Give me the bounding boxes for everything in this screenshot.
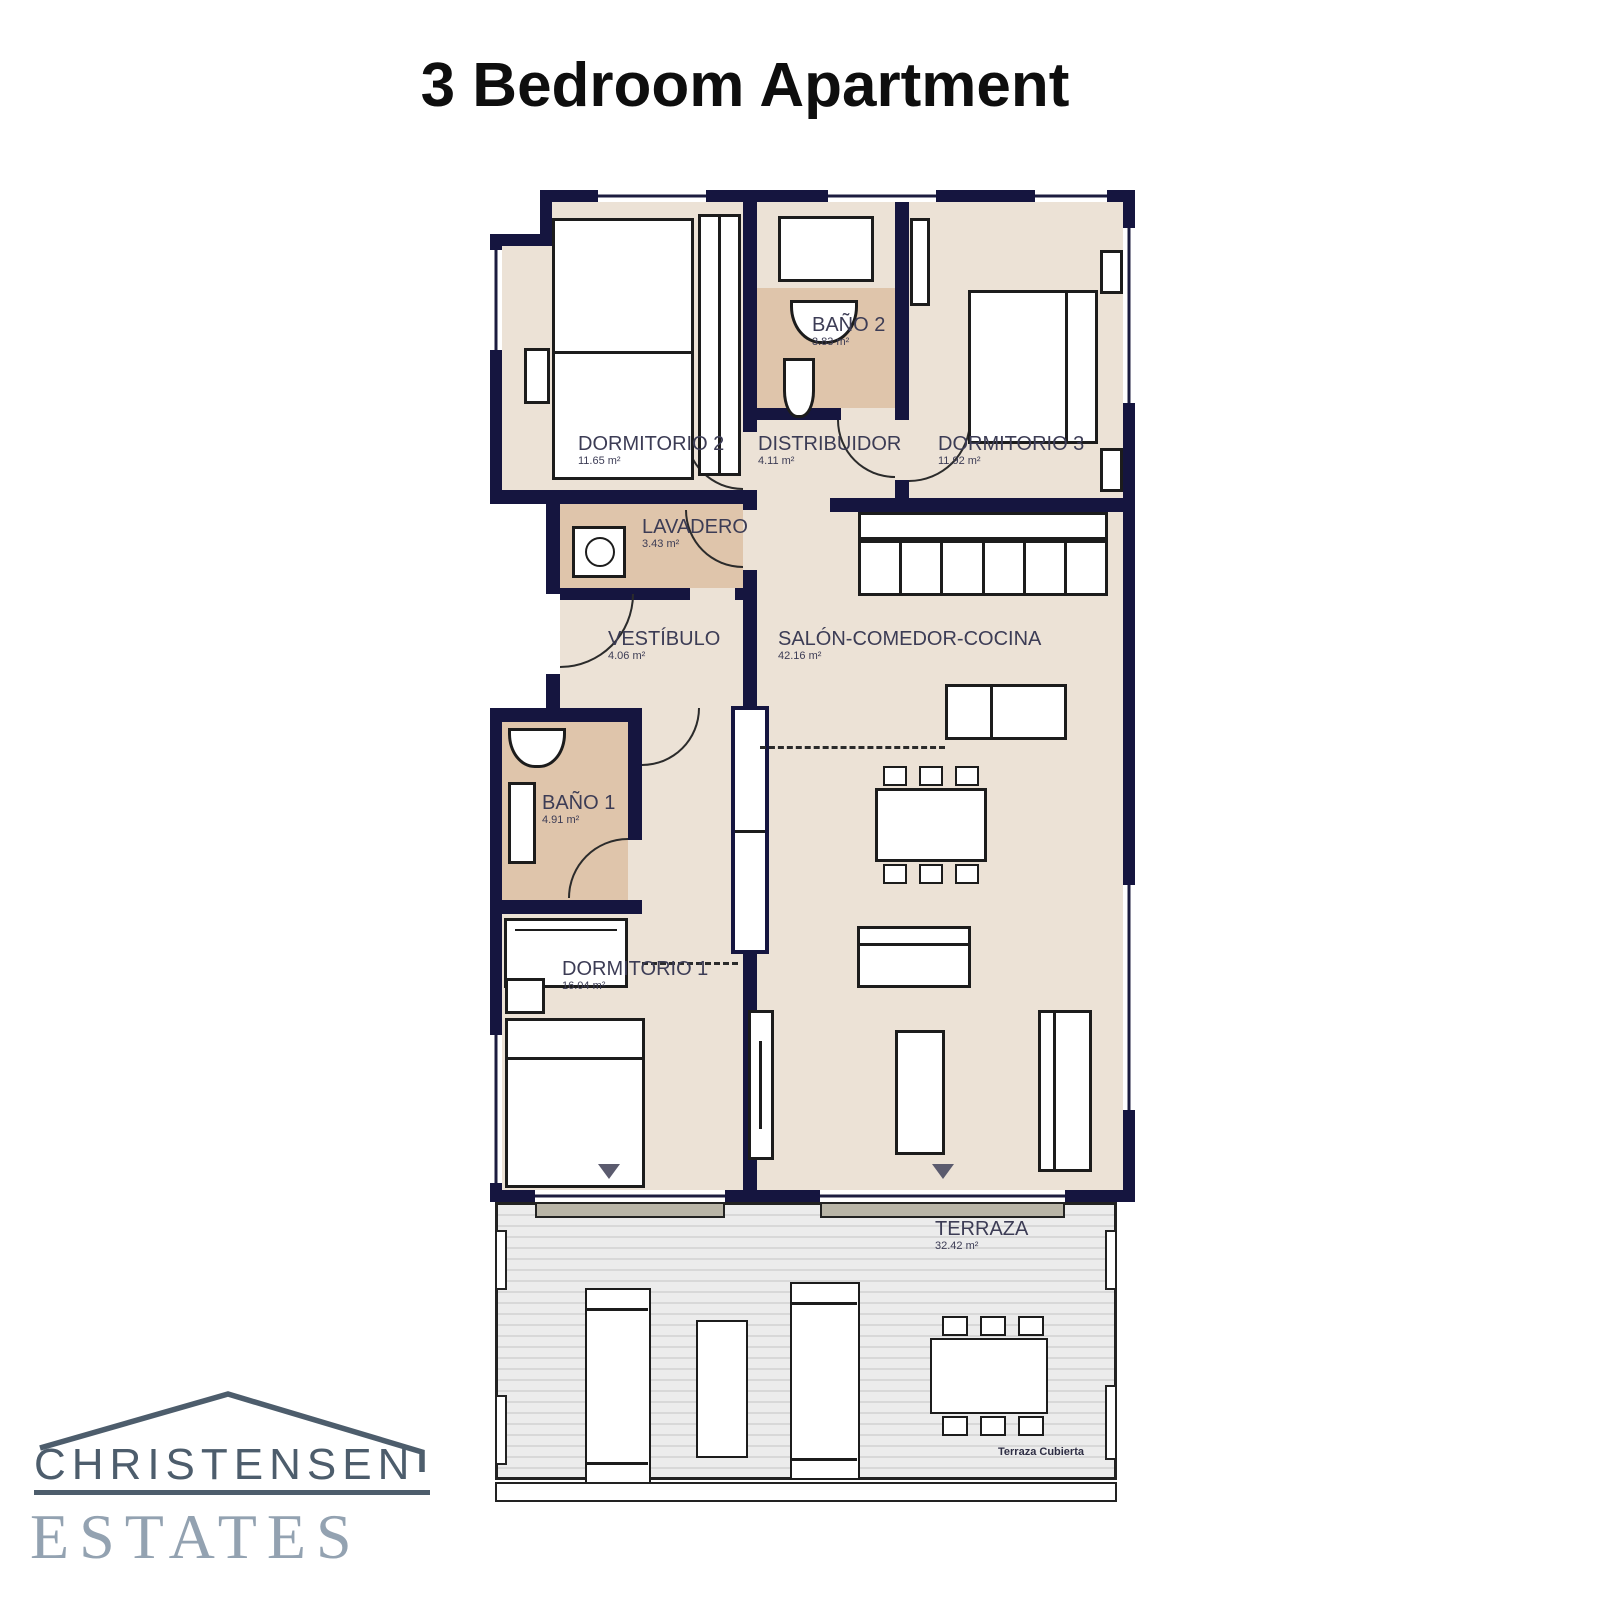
door-arrow-icon (598, 1164, 620, 1179)
chair (883, 864, 907, 884)
chair (919, 864, 943, 884)
window (828, 190, 936, 202)
terrace-sliding-door (820, 1190, 1065, 1202)
closet (910, 218, 930, 306)
window (1123, 885, 1135, 1110)
kitchen-cabinet (982, 543, 1023, 593)
divider (587, 1462, 648, 1465)
room-label-dormitorio-3: DORMITORIO 3 11.92 m² (938, 433, 1084, 468)
sun-lounger (790, 1282, 860, 1480)
chair (883, 766, 907, 786)
toilet (783, 358, 815, 418)
terrace-pillar (495, 1230, 507, 1290)
wall (735, 588, 747, 600)
kitchen-cabinet (899, 543, 940, 593)
terrace-pillar (1105, 1230, 1117, 1290)
logo-name-bottom: ESTATES (30, 1500, 440, 1574)
terrace-threshold (820, 1202, 1065, 1218)
room-label-bano-2: BAÑO 2 3.83 m² (812, 314, 885, 349)
window (490, 1035, 502, 1183)
chair (955, 864, 979, 884)
sun-lounger (585, 1288, 651, 1484)
terrace-pillar (495, 1395, 507, 1465)
sofa (857, 926, 971, 988)
bathroom-cabinet (508, 782, 536, 864)
chair (919, 766, 943, 786)
chair (942, 1316, 968, 1336)
logo-name-top: CHRISTENSEN (34, 1440, 434, 1490)
coffee-table (895, 1030, 945, 1155)
tv-unit (748, 1010, 774, 1160)
dining-table (875, 788, 987, 862)
room-label-bano-1: BAÑO 1 4.91 m² (542, 792, 615, 827)
room-label-terraza: TERRAZA 32.42 m² (935, 1218, 1028, 1253)
window (598, 190, 706, 202)
terrace-sliding-door (535, 1190, 725, 1202)
door-arrow-icon (932, 1164, 954, 1179)
sofa (1038, 1010, 1092, 1172)
kitchen-counter (858, 512, 1108, 540)
nightstand (1100, 250, 1123, 294)
terrace-threshold (535, 1202, 725, 1218)
terrace-dining-table (930, 1338, 1048, 1414)
kitchen-cabinet (1064, 543, 1105, 593)
divider (508, 1057, 642, 1060)
chair (1018, 1416, 1044, 1436)
terrace-pillar (1105, 1385, 1117, 1460)
page-title: 3 Bedroom Apartment (0, 50, 1490, 121)
kitchen-cabinet (940, 543, 981, 593)
divider (1053, 1013, 1056, 1169)
entrance-door-opening (546, 594, 560, 674)
terrace-bottom-edge (495, 1482, 1117, 1502)
room-label-lavadero: LAVADERO 3.43 m² (642, 516, 748, 551)
bed (968, 290, 1098, 444)
room-label-salon-comedor-cocina: SALÓN-COMEDOR-COCINA 42.16 m² (778, 628, 1041, 663)
divider (792, 1458, 857, 1461)
wall (490, 490, 743, 504)
window (1035, 190, 1107, 202)
wall (895, 202, 909, 420)
divider (515, 929, 617, 931)
divider (1065, 293, 1068, 441)
window (1123, 228, 1135, 403)
bed (505, 1018, 645, 1188)
wall-notch (490, 190, 552, 246)
wall (830, 498, 1123, 512)
terrace-note: Terraza Cubierta (998, 1446, 1084, 1458)
chair (980, 1416, 1006, 1436)
divider (792, 1302, 857, 1305)
chair (1018, 1316, 1044, 1336)
nightstand (505, 978, 545, 1014)
wall (628, 708, 642, 840)
dashed-boundary (760, 746, 945, 749)
room-label-vestibulo: VESTÍBULO 4.06 m² (608, 628, 720, 663)
divider (555, 351, 691, 354)
chair (955, 766, 979, 786)
nightstand (524, 348, 550, 404)
logo-rule (34, 1490, 430, 1495)
nightstand (1100, 448, 1123, 492)
wall (490, 708, 642, 722)
chair (980, 1316, 1006, 1336)
wall (743, 202, 757, 432)
wall (743, 490, 757, 510)
divider (990, 687, 993, 737)
divider (860, 943, 968, 946)
page: 3 Bedroom Apartment (0, 0, 1600, 1600)
hall-wardrobe (731, 706, 769, 954)
room-label-dormitorio-1: DORMITORIO 1 16.04 m² (562, 958, 708, 993)
divider (587, 1308, 648, 1311)
christensen-estates-logo: CHRISTENSEN ESTATES (26, 1384, 456, 1594)
divider (735, 830, 765, 833)
cabinet (778, 216, 874, 282)
room-label-distribuidor: DISTRIBUIDOR 4.11 m² (758, 433, 901, 468)
floor-plan: DORMITORIO 2 11.65 m² BAÑO 2 3.83 m² DIS… (490, 190, 1140, 1510)
kitchen-cabinet (1023, 543, 1064, 593)
room-label-dormitorio-2: DORMITORIO 2 11.65 m² (578, 433, 724, 468)
window (490, 250, 502, 350)
wall (490, 900, 640, 914)
washing-machine (572, 526, 626, 578)
divider (759, 1041, 762, 1129)
kitchen-appliance-row (858, 540, 1108, 596)
kitchen-island (945, 684, 1067, 740)
chair (942, 1416, 968, 1436)
terrace-side-table (696, 1320, 748, 1458)
washer-drum (585, 537, 615, 567)
kitchen-cabinet (861, 543, 899, 593)
